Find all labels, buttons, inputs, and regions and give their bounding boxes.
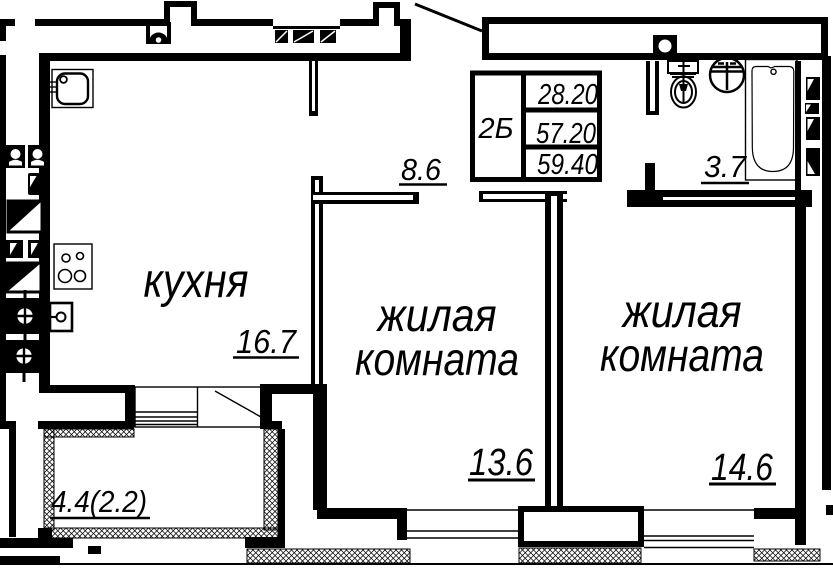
svg-text:13.6: 13.6: [469, 442, 534, 484]
svg-text:4.4(2.2): 4.4(2.2): [51, 484, 147, 519]
svg-text:2Б: 2Б: [477, 113, 513, 145]
svg-text:57.20: 57.20: [536, 118, 596, 150]
svg-text:комната: комната: [600, 329, 764, 381]
svg-text:кухня: кухня: [144, 255, 249, 308]
svg-text:16.7: 16.7: [236, 323, 298, 360]
svg-text:59.40: 59.40: [537, 149, 598, 181]
svg-text:8.6: 8.6: [401, 152, 442, 187]
svg-text:3.7: 3.7: [704, 149, 748, 184]
svg-text:комната: комната: [355, 333, 519, 385]
svg-text:28.20: 28.20: [537, 79, 598, 111]
